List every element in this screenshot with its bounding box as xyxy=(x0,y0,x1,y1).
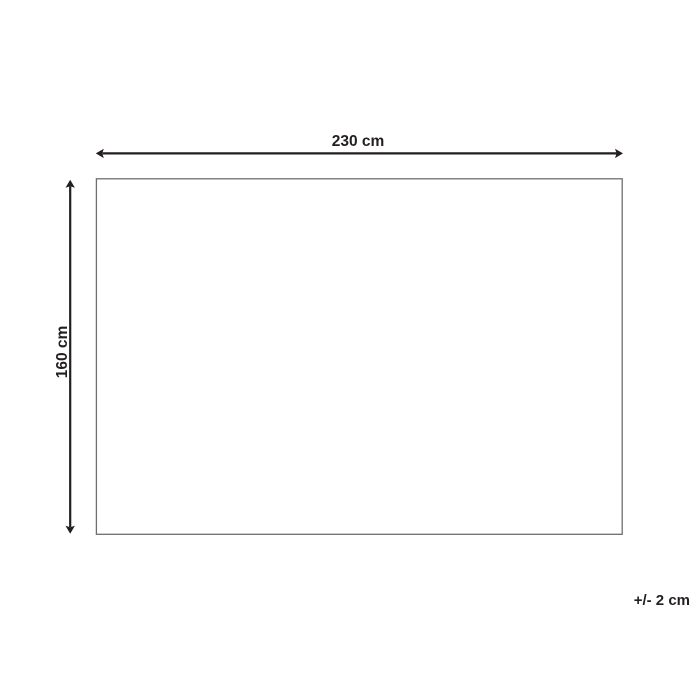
svg-text:160 cm: 160 cm xyxy=(54,326,71,379)
svg-text:230 cm: 230 cm xyxy=(332,133,385,150)
svg-text:+/- 2 cm: +/- 2 cm xyxy=(634,592,690,609)
